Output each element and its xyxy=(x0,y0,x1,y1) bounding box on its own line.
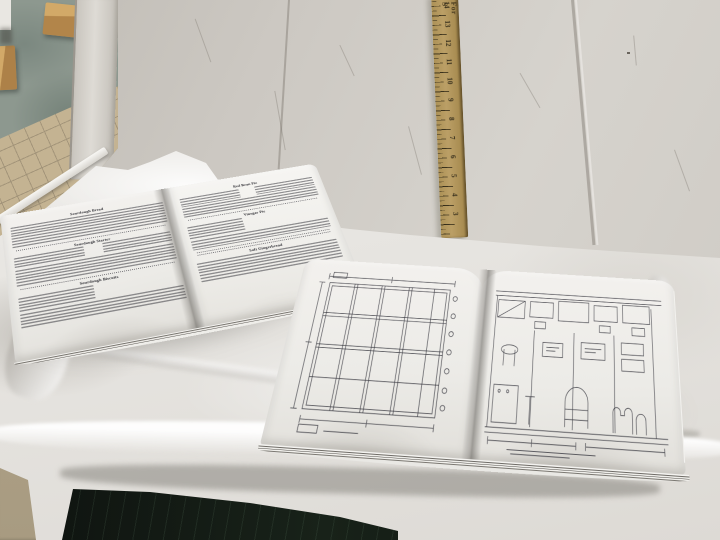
door-frame-shadow xyxy=(0,28,12,44)
yardstick-number: 14 xyxy=(442,0,450,11)
yardstick-number: 7 xyxy=(448,132,456,144)
yardstick-number: 13 xyxy=(443,18,451,30)
yardstick-number: 6 xyxy=(449,151,457,163)
plans-booklet xyxy=(260,259,686,476)
wood-block-2 xyxy=(0,45,17,90)
framing-drawing xyxy=(271,265,475,452)
photo-scene: For S 14 13 12 11 10 9 8 7 6 5 4 3 Sourd… xyxy=(0,0,720,540)
plans-page-right xyxy=(466,270,686,476)
yardstick-number: 3 xyxy=(451,208,459,220)
yardstick-number: 8 xyxy=(447,113,455,125)
yardstick-number: 11 xyxy=(445,56,453,68)
yardstick-number: 5 xyxy=(449,170,457,182)
yardstick-number: 10 xyxy=(445,75,453,87)
yardstick-number: 12 xyxy=(444,37,452,49)
yardstick-number: 4 xyxy=(450,189,458,201)
fixtures-drawing xyxy=(477,276,676,467)
yardstick-number: 9 xyxy=(446,94,454,106)
door-frame-sliver xyxy=(0,0,11,30)
